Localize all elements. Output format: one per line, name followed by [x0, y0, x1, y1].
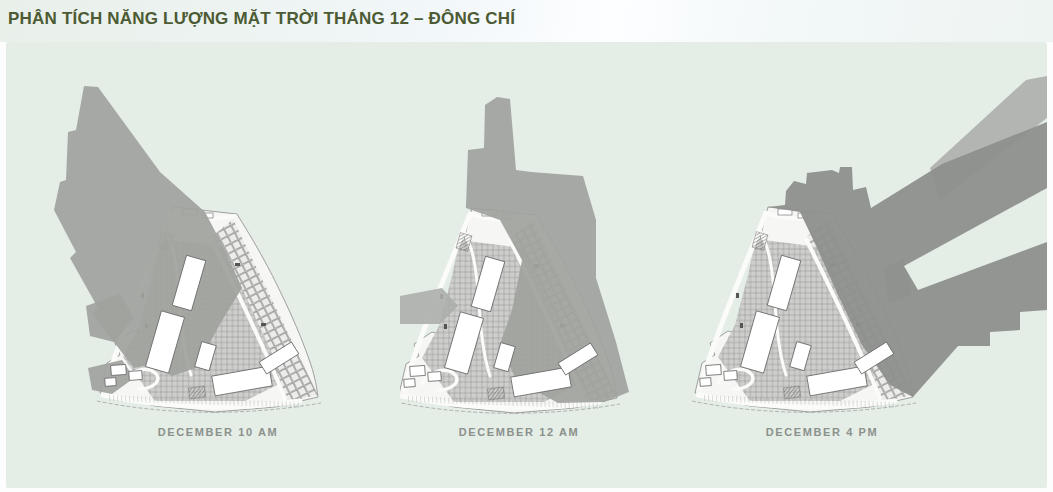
solar-map-december-12am — [400, 60, 680, 420]
map-label-december-12am: DECEMBER 12 AM — [459, 426, 579, 438]
solar-map-december-4pm — [690, 60, 1047, 432]
map-label-december-4pm: DECEMBER 4 PM — [766, 426, 878, 438]
site-plan-4pm — [690, 60, 1047, 432]
slide-header: PHÂN TÍCH NĂNG LƯỢNG MẶT TRỜI THÁNG 12 –… — [0, 0, 1053, 42]
solar-analysis-panel: DECEMBER 10 AM DECEMBER 12 AM DECEMBER 4… — [6, 42, 1047, 488]
site-plan-10am — [40, 60, 360, 420]
page-title: PHÂN TÍCH NĂNG LƯỢNG MẶT TRỜI THÁNG 12 –… — [8, 9, 515, 29]
slide-page: PHÂN TÍCH NĂNG LƯỢNG MẶT TRỜI THÁNG 12 –… — [0, 0, 1053, 492]
site-plan-12am — [400, 60, 680, 420]
solar-map-december-10am — [40, 60, 360, 420]
map-label-december-10am: DECEMBER 10 AM — [158, 426, 278, 438]
